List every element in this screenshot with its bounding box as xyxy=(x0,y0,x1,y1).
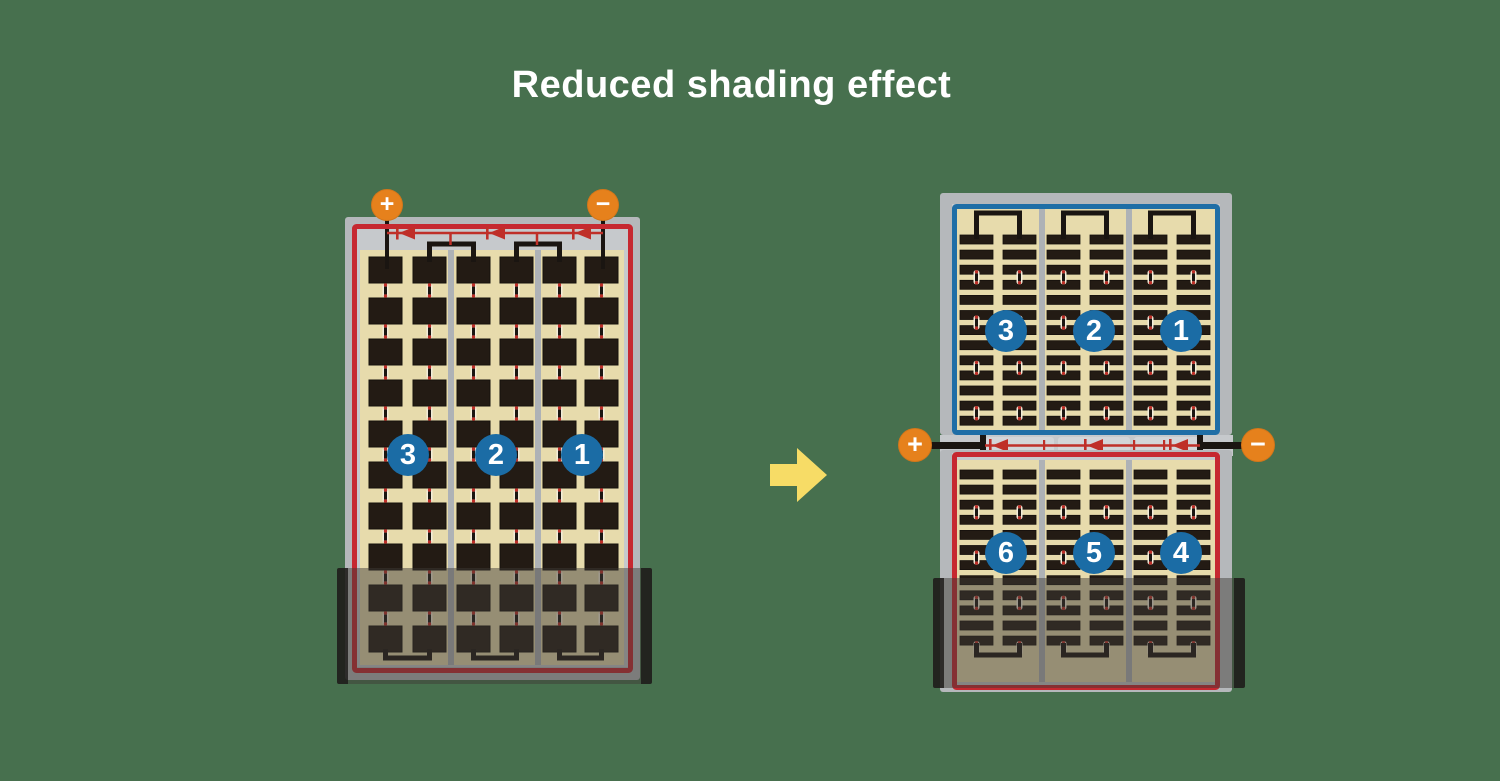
right-top-string-badge-1: 1 xyxy=(1160,310,1202,352)
right-bottom-string-badge-4: 4 xyxy=(1160,532,1202,574)
shading-overlay-left-panel xyxy=(337,568,652,684)
negative-terminal-left-panel: − xyxy=(587,189,619,221)
transition-arrow-icon xyxy=(770,447,828,503)
reduced-shading-diagram: Reduced shading effect + − + − 3 2 1 3 2… xyxy=(0,0,1500,781)
negative-terminal-right-panel: − xyxy=(1241,428,1275,462)
right-bottom-string-badge-6: 6 xyxy=(985,532,1027,574)
shading-overlay-right-panel xyxy=(933,578,1245,688)
diagram-title: Reduced shading effect xyxy=(0,64,1463,107)
left-string-badge-1: 1 xyxy=(561,434,603,476)
left-string-badge-2: 2 xyxy=(475,434,517,476)
right-top-string-badge-3: 3 xyxy=(985,310,1027,352)
positive-terminal-right-panel: + xyxy=(898,428,932,462)
positive-terminal-left-panel: + xyxy=(371,189,403,221)
left-string-badge-3: 3 xyxy=(387,434,429,476)
right-top-string-badge-2: 2 xyxy=(1073,310,1115,352)
right-bottom-string-badge-5: 5 xyxy=(1073,532,1115,574)
